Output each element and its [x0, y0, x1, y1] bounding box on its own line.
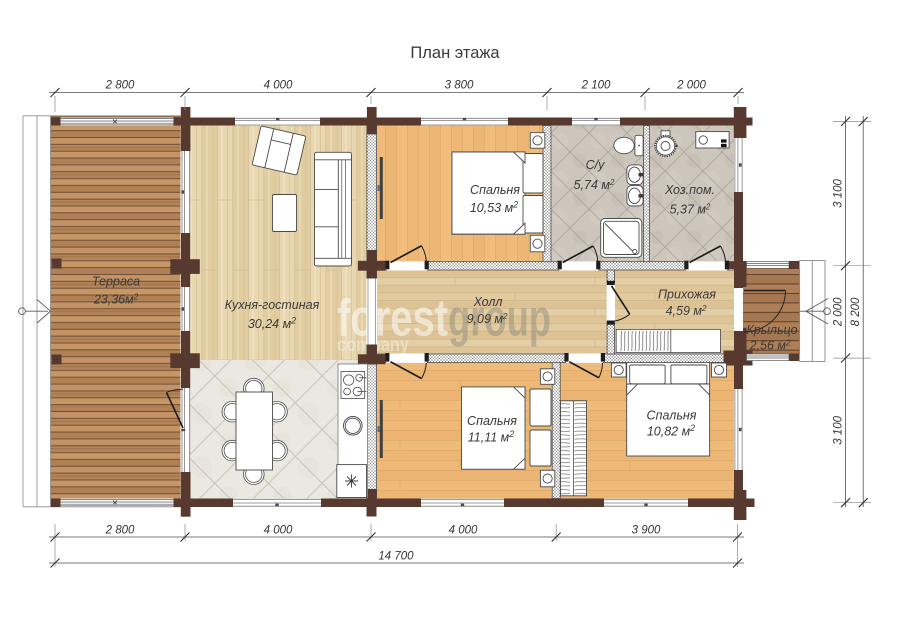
svg-text:5,74 м2: 5,74 м2: [574, 178, 615, 192]
svg-text:Спальня: Спальня: [470, 183, 520, 197]
svg-text:5,37 м2: 5,37 м2: [670, 203, 711, 217]
svg-text:14 700: 14 700: [378, 551, 414, 563]
svg-text:11,11 м2: 11,11 м2: [468, 429, 514, 445]
svg-text:4,59 м2: 4,59 м2: [666, 304, 707, 318]
svg-text:3 900: 3 900: [632, 525, 661, 537]
svg-text:4 000: 4 000: [264, 525, 293, 537]
svg-text:4 000: 4 000: [264, 80, 293, 92]
svg-text:9,09 м2: 9,09 м2: [467, 312, 508, 326]
svg-text:2 800: 2 800: [105, 80, 135, 92]
svg-text:3 800: 3 800: [445, 80, 474, 92]
svg-text:2 000: 2 000: [833, 297, 845, 327]
svg-text:2,56 м2: 2,56 м2: [749, 339, 791, 353]
svg-text:2 100: 2 100: [581, 80, 611, 92]
svg-text:3 100: 3 100: [833, 179, 845, 208]
svg-text:Терраса: Терраса: [92, 275, 140, 289]
svg-text:8 200: 8 200: [850, 297, 862, 326]
svg-text:Холл: Холл: [473, 295, 503, 309]
svg-text:План этажа: План этажа: [410, 44, 500, 62]
svg-text:Кухня-гостиная: Кухня-гостиная: [225, 298, 320, 312]
svg-text:3 100: 3 100: [833, 415, 845, 444]
svg-text:10,82 м2: 10,82 м2: [647, 423, 695, 439]
svg-text:Крыльцо: Крыльцо: [746, 323, 797, 337]
svg-text:10,53 м2: 10,53 м2: [470, 200, 518, 216]
svg-text:Спальня: Спальня: [647, 409, 697, 423]
svg-text:Спальня: Спальня: [467, 414, 517, 428]
svg-text:С/у: С/у: [586, 158, 606, 172]
svg-text:2 000: 2 000: [676, 80, 706, 92]
svg-text:30,24 м2: 30,24 м2: [248, 316, 296, 332]
svg-text:2 800: 2 800: [105, 525, 135, 537]
svg-text:23,36м2: 23,36м2: [93, 293, 139, 307]
svg-text:Прихожая: Прихожая: [658, 288, 716, 302]
svg-text:Хоз.пом.: Хоз.пом.: [664, 183, 715, 197]
svg-text:4 000: 4 000: [449, 525, 478, 537]
